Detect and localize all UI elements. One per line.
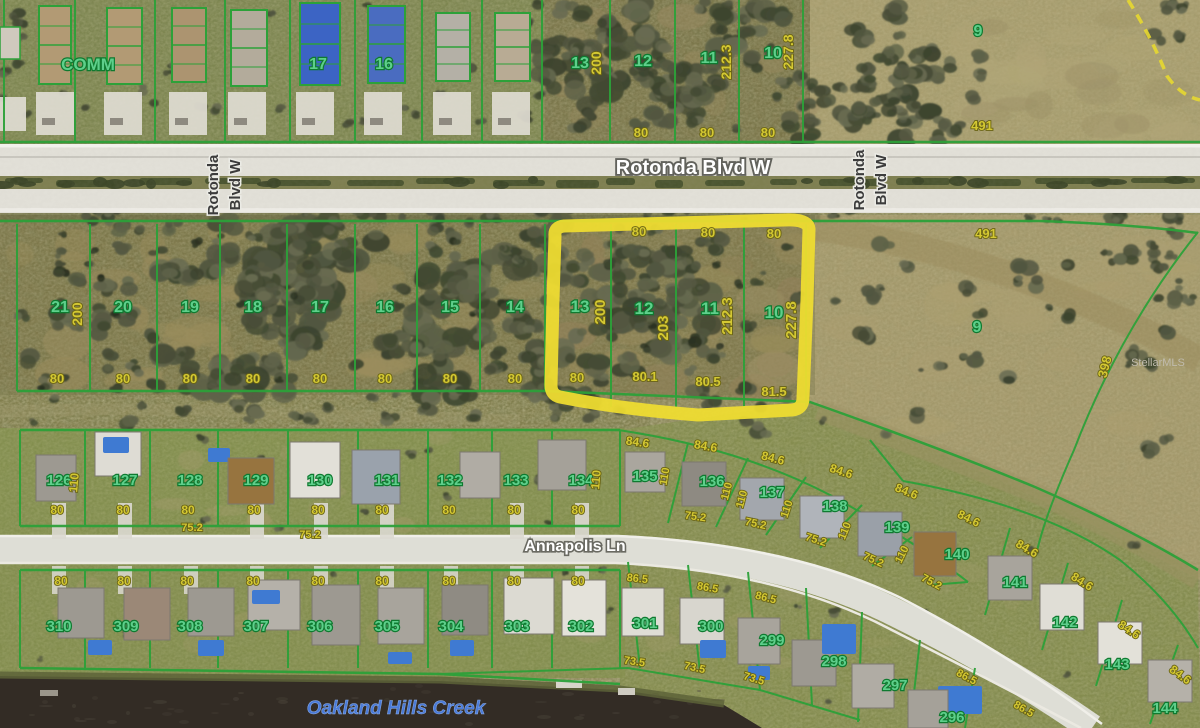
svg-text:300: 300 [698, 618, 723, 635]
svg-text:303: 303 [504, 618, 529, 635]
svg-text:14: 14 [506, 299, 524, 316]
svg-text:Blvd W: Blvd W [227, 159, 244, 211]
svg-text:80: 80 [183, 371, 197, 386]
svg-text:16: 16 [376, 299, 394, 316]
svg-text:17: 17 [311, 299, 329, 316]
svg-text:12: 12 [635, 299, 654, 318]
svg-text:110: 110 [66, 472, 82, 493]
svg-text:138: 138 [822, 498, 847, 515]
svg-text:80: 80 [571, 574, 585, 588]
svg-text:86.5: 86.5 [626, 572, 649, 586]
svg-text:20: 20 [114, 299, 132, 316]
svg-text:80: 80 [180, 574, 194, 588]
svg-text:17: 17 [309, 56, 327, 73]
svg-text:75.2: 75.2 [181, 522, 202, 534]
svg-text:227.8: 227.8 [780, 34, 796, 69]
svg-text:Rotonda Blvd W: Rotonda Blvd W [616, 157, 771, 179]
svg-text:299: 299 [759, 632, 784, 649]
svg-text:307: 307 [243, 618, 268, 635]
svg-text:13: 13 [571, 297, 590, 316]
svg-text:80: 80 [246, 574, 260, 588]
svg-text:80: 80 [442, 503, 456, 517]
svg-text:10: 10 [765, 303, 784, 322]
svg-text:130: 130 [307, 472, 332, 489]
svg-text:Rotonda: Rotonda [851, 149, 868, 210]
svg-text:296: 296 [939, 709, 964, 726]
svg-text:127: 127 [112, 472, 137, 489]
svg-text:81.5: 81.5 [761, 384, 786, 399]
svg-text:80: 80 [570, 370, 584, 385]
svg-text:200: 200 [588, 51, 604, 75]
svg-text:Oakland Hills Creek: Oakland Hills Creek [307, 698, 487, 719]
svg-text:80: 80 [311, 574, 325, 588]
svg-text:80: 80 [117, 574, 131, 588]
svg-text:131: 131 [374, 472, 399, 489]
svg-text:80: 80 [378, 371, 392, 386]
svg-text:16: 16 [375, 56, 393, 73]
svg-text:80: 80 [50, 371, 64, 386]
svg-text:13: 13 [571, 55, 589, 72]
svg-text:80: 80 [246, 371, 260, 386]
svg-text:304: 304 [438, 618, 464, 635]
svg-text:Annapolis Ln: Annapolis Ln [524, 538, 625, 555]
svg-text:80: 80 [632, 224, 646, 239]
svg-text:80: 80 [181, 503, 195, 517]
svg-text:200: 200 [592, 299, 609, 324]
svg-text:75.2: 75.2 [299, 529, 320, 541]
svg-text:310: 310 [46, 618, 71, 635]
svg-text:80: 80 [571, 503, 585, 517]
svg-text:135: 135 [632, 468, 657, 485]
svg-text:18: 18 [244, 299, 262, 316]
svg-text:139: 139 [884, 519, 909, 536]
svg-text:80: 80 [375, 503, 389, 517]
svg-text:Blvd W: Blvd W [873, 154, 890, 206]
svg-text:80: 80 [701, 225, 715, 240]
svg-text:212.3: 212.3 [719, 297, 736, 335]
svg-text:129: 129 [243, 472, 268, 489]
svg-text:80.5: 80.5 [695, 374, 720, 389]
svg-text:80: 80 [634, 125, 648, 140]
svg-text:80: 80 [116, 503, 130, 517]
svg-text:136: 136 [699, 473, 724, 490]
svg-text:15: 15 [441, 299, 459, 316]
svg-text:9: 9 [974, 23, 983, 40]
svg-text:80: 80 [508, 371, 522, 386]
svg-text:110: 110 [588, 469, 604, 490]
svg-text:141: 141 [1002, 574, 1027, 591]
svg-text:80.1: 80.1 [632, 369, 657, 384]
svg-text:COMM: COMM [61, 55, 115, 74]
svg-text:137: 137 [759, 484, 784, 501]
svg-text:128: 128 [177, 472, 202, 489]
svg-text:StellarMLS: StellarMLS [1131, 357, 1185, 369]
svg-text:80: 80 [761, 125, 775, 140]
svg-text:12: 12 [634, 53, 652, 70]
svg-text:491: 491 [975, 226, 997, 241]
svg-text:80: 80 [507, 503, 521, 517]
svg-text:143: 143 [1104, 656, 1129, 673]
svg-text:144: 144 [1152, 700, 1178, 717]
svg-text:80: 80 [54, 574, 68, 588]
svg-text:203: 203 [655, 315, 672, 340]
svg-text:306: 306 [307, 618, 332, 635]
svg-text:80: 80 [311, 503, 325, 517]
svg-text:80: 80 [700, 125, 714, 140]
svg-text:Rotonda: Rotonda [205, 154, 222, 215]
svg-text:80: 80 [767, 226, 781, 241]
svg-text:305: 305 [374, 618, 399, 635]
svg-text:491: 491 [971, 118, 993, 133]
svg-text:80: 80 [116, 371, 130, 386]
svg-text:297: 297 [882, 677, 907, 694]
svg-text:80: 80 [313, 371, 327, 386]
svg-text:132: 132 [437, 472, 462, 489]
svg-text:80: 80 [50, 503, 64, 517]
svg-text:11: 11 [701, 50, 718, 67]
svg-text:302: 302 [568, 618, 593, 635]
svg-text:227.8: 227.8 [783, 301, 800, 339]
svg-text:309: 309 [113, 618, 138, 635]
svg-text:308: 308 [177, 618, 202, 635]
svg-text:9: 9 [973, 319, 982, 336]
svg-text:212.3: 212.3 [718, 44, 734, 79]
svg-text:11: 11 [701, 299, 719, 318]
svg-text:80: 80 [443, 371, 457, 386]
svg-text:80: 80 [375, 574, 389, 588]
svg-text:80: 80 [507, 574, 521, 588]
svg-text:80: 80 [247, 503, 261, 517]
svg-text:140: 140 [944, 546, 969, 563]
svg-text:142: 142 [1052, 614, 1077, 631]
svg-text:21: 21 [51, 299, 69, 316]
svg-text:298: 298 [821, 653, 846, 670]
svg-text:19: 19 [181, 299, 199, 316]
svg-text:80: 80 [442, 574, 456, 588]
svg-text:301: 301 [632, 615, 657, 632]
svg-text:200: 200 [69, 302, 85, 326]
svg-text:133: 133 [503, 472, 528, 489]
